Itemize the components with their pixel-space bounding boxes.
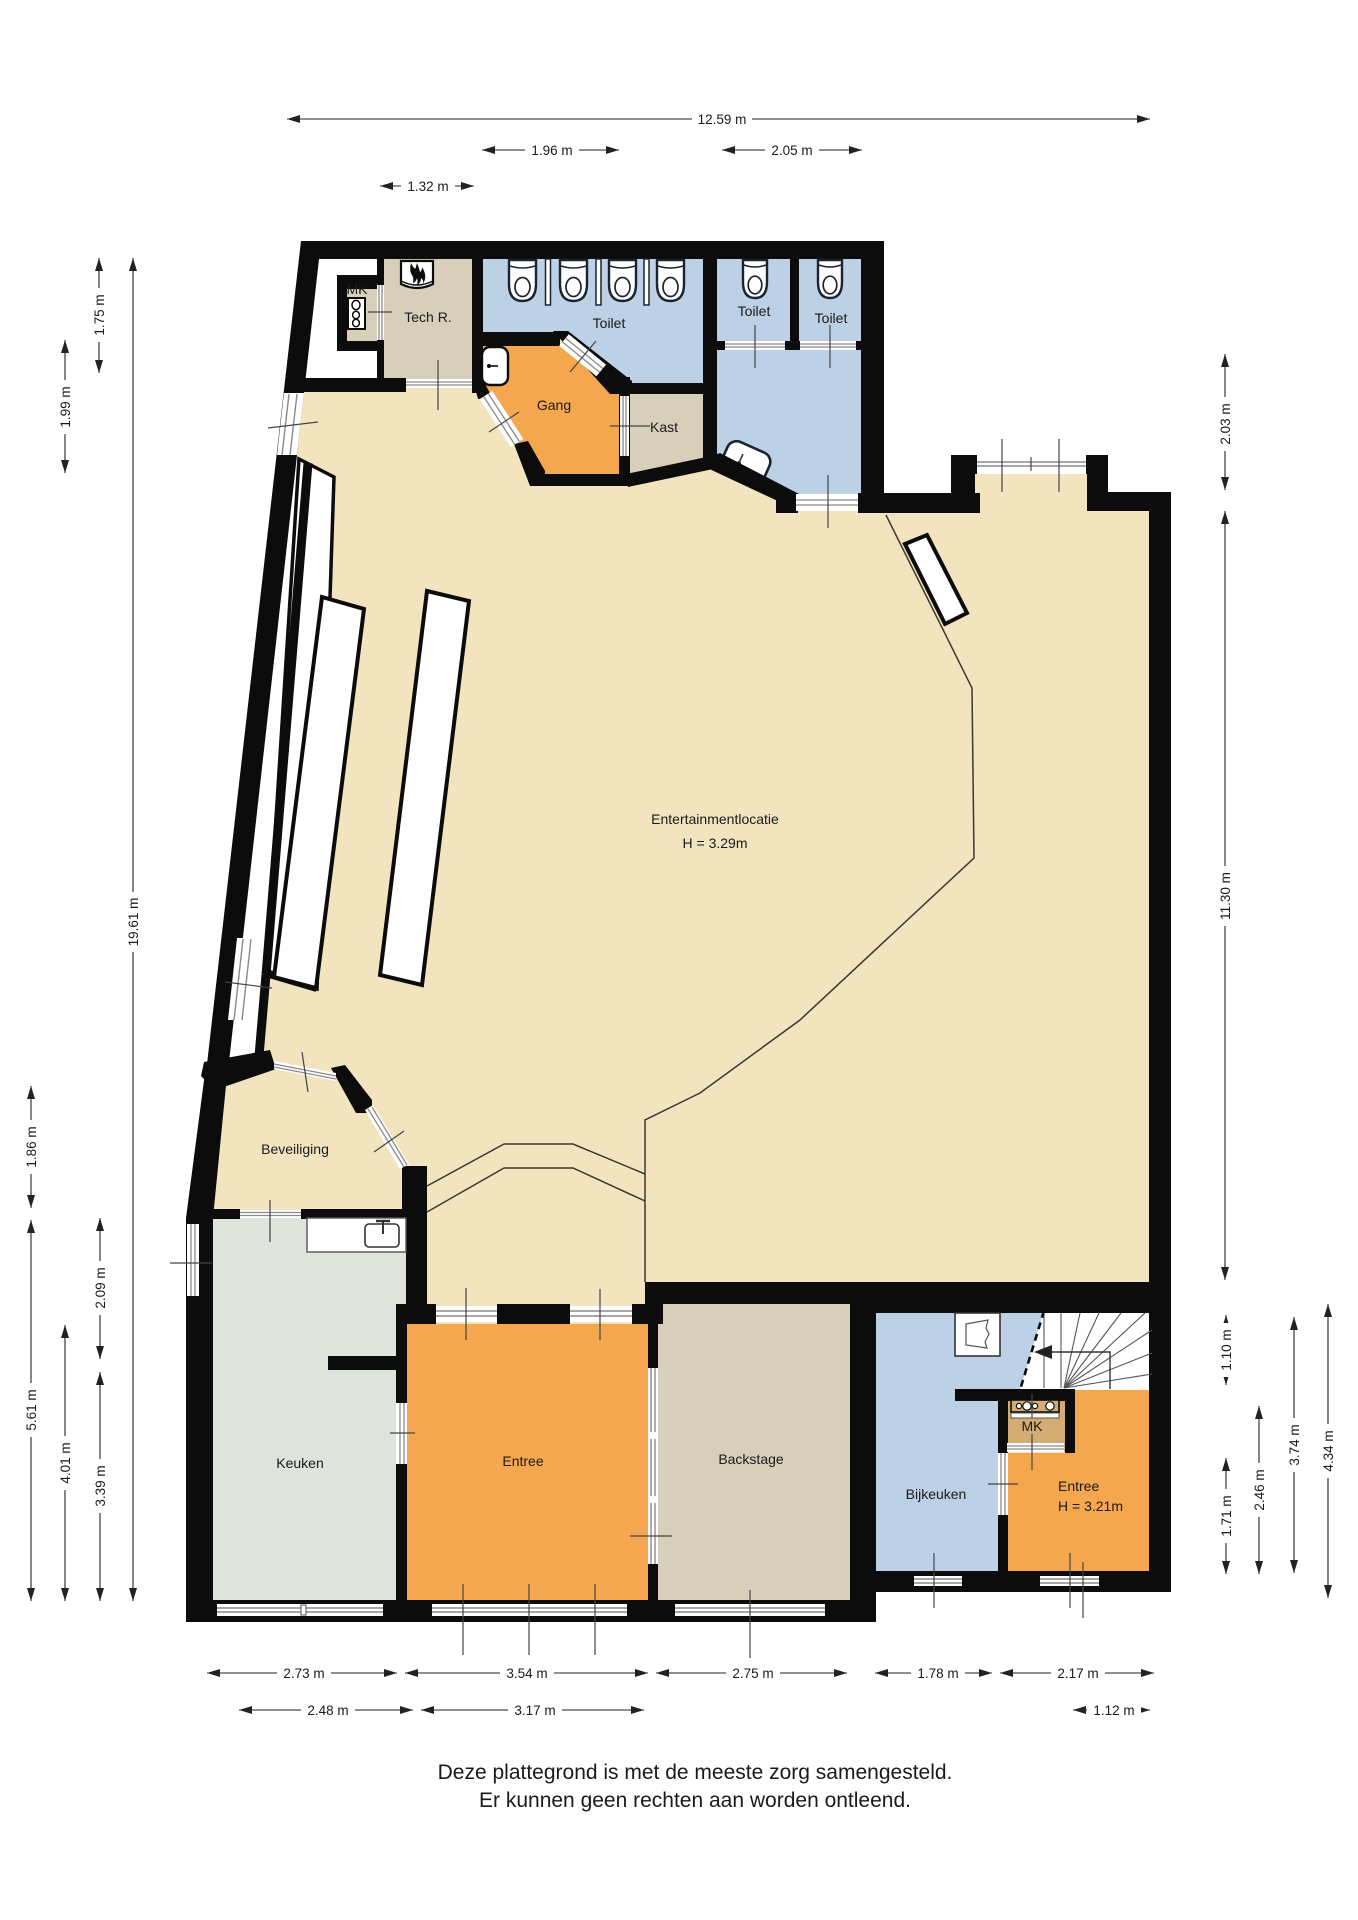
svg-text:1.75 m: 1.75 m — [92, 294, 107, 335]
svg-text:4.34 m: 4.34 m — [1321, 1430, 1336, 1471]
svg-text:Backstage: Backstage — [718, 1451, 784, 1467]
svg-text:1.96 m: 1.96 m — [531, 143, 572, 158]
svg-text:Er kunnen geen rechten aan wor: Er kunnen geen rechten aan worden ontlee… — [479, 1789, 911, 1812]
svg-text:Toilet: Toilet — [738, 303, 771, 319]
svg-text:2.03 m: 2.03 m — [1218, 403, 1233, 444]
svg-text:2.17 m: 2.17 m — [1057, 1666, 1098, 1681]
svg-text:Toilet: Toilet — [815, 310, 848, 326]
svg-text:2.09 m: 2.09 m — [93, 1267, 108, 1308]
svg-text:1.78 m: 1.78 m — [917, 1666, 958, 1681]
svg-text:1.12 m: 1.12 m — [1093, 1703, 1134, 1718]
svg-text:2.05 m: 2.05 m — [771, 143, 812, 158]
svg-text:Entertainmentlocatie: Entertainmentlocatie — [651, 811, 779, 827]
svg-text:11.30 m: 11.30 m — [1218, 872, 1233, 920]
svg-text:19.61 m: 19.61 m — [126, 898, 141, 947]
svg-text:Keuken: Keuken — [276, 1455, 323, 1471]
svg-text:1.71 m: 1.71 m — [1219, 1495, 1234, 1536]
svg-text:Entree: Entree — [502, 1453, 543, 1469]
svg-text:5.61 m: 5.61 m — [24, 1389, 39, 1430]
svg-text:Deze plattegrond is met de mee: Deze plattegrond is met de meeste zorg s… — [438, 1761, 953, 1784]
svg-text:2.73 m: 2.73 m — [283, 1666, 324, 1681]
svg-text:MK: MK — [347, 281, 369, 297]
svg-text:1.99 m: 1.99 m — [58, 386, 73, 427]
svg-text:2.48 m: 2.48 m — [307, 1703, 348, 1718]
svg-text:MK: MK — [1022, 1418, 1044, 1434]
svg-text:1.86 m: 1.86 m — [24, 1126, 39, 1167]
svg-text:3.17 m: 3.17 m — [514, 1703, 555, 1718]
svg-text:Toilet: Toilet — [593, 315, 626, 331]
svg-text:H = 3.21m: H = 3.21m — [1058, 1498, 1123, 1514]
svg-text:Gang: Gang — [537, 397, 571, 413]
svg-text:Beveiliging: Beveiliging — [261, 1141, 329, 1157]
svg-text:Entree: Entree — [1058, 1478, 1099, 1494]
svg-text:1.10 m: 1.10 m — [1219, 1329, 1234, 1370]
svg-text:Bijkeuken: Bijkeuken — [906, 1486, 967, 1502]
svg-text:H = 3.29m: H = 3.29m — [683, 835, 748, 851]
svg-text:Tech R.: Tech R. — [404, 309, 451, 325]
svg-text:12.59 m: 12.59 m — [698, 112, 747, 127]
svg-text:2.75 m: 2.75 m — [732, 1666, 773, 1681]
svg-text:3.74 m: 3.74 m — [1287, 1424, 1302, 1465]
svg-text:Kast: Kast — [650, 419, 678, 435]
svg-text:3.54 m: 3.54 m — [506, 1666, 547, 1681]
svg-text:2.46 m: 2.46 m — [1252, 1469, 1267, 1510]
svg-text:1.32 m: 1.32 m — [407, 179, 448, 194]
svg-text:3.39 m: 3.39 m — [93, 1465, 108, 1506]
svg-text:4.01 m: 4.01 m — [58, 1442, 73, 1483]
